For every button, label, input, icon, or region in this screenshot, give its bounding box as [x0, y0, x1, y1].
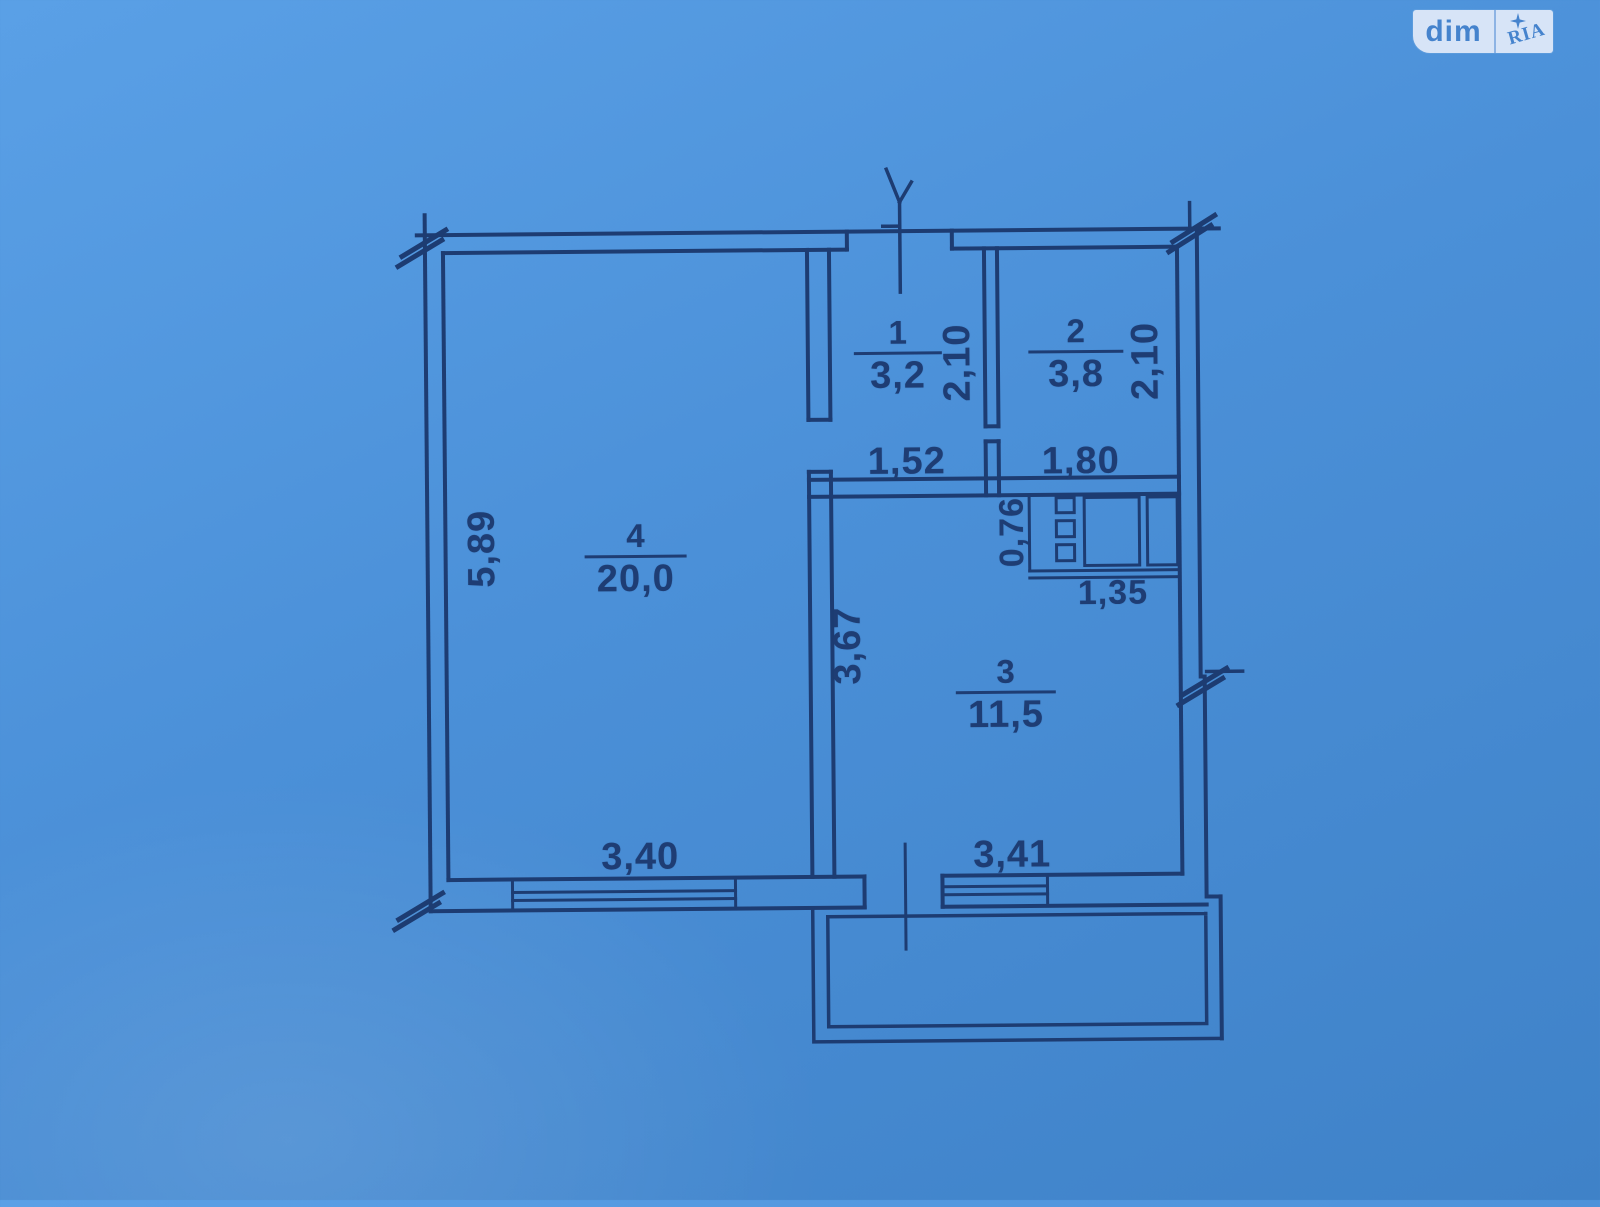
room-3-area: 11,5	[968, 695, 1044, 736]
room-3-label: 3 11,5	[955, 654, 1056, 736]
dim-room4-width: 3,40	[601, 836, 679, 880]
room-2-number: 2	[1066, 314, 1085, 347]
balcony	[813, 904, 1222, 1042]
room-4-number: 4	[626, 519, 645, 552]
room-2-label: 2 3,8	[1028, 314, 1124, 396]
dim-room3-width: 3,41	[973, 833, 1051, 877]
balcony-door	[905, 844, 906, 949]
dim-room2-width: 1,80	[1042, 440, 1120, 484]
room-1-label: 1 3,2	[854, 315, 943, 397]
vent-shaft	[1029, 494, 1180, 578]
dim-room1-width: 1,52	[868, 440, 946, 484]
dim-room2-height: 2,10	[1124, 322, 1168, 400]
room-4-label: 4 20,0	[584, 519, 687, 601]
floor-plan-photo: 1 3,2 2 3,8 3 11,5 4 20,0 1,52 1,80 1,35…	[0, 0, 1600, 1207]
room-4-area: 20,0	[597, 560, 675, 601]
dim-room3-height: 3,67	[827, 606, 871, 684]
room-2-area: 3,8	[1048, 355, 1104, 395]
room-1-number: 1	[888, 316, 907, 349]
dimria-logo-dim-text: dim	[1413, 10, 1496, 53]
dimria-logo: dim RIA	[1413, 10, 1553, 53]
room-3-number: 3	[996, 655, 1015, 688]
dim-shaft-width: 1,35	[1078, 573, 1149, 613]
dimria-logo-ria-block: RIA	[1496, 10, 1553, 53]
dim-room4-height: 5,89	[461, 510, 505, 588]
floor-plan-drawing	[0, 0, 1600, 1207]
dim-shaft-height: 0,76	[993, 497, 1033, 568]
dim-room1-height: 2,10	[936, 323, 980, 401]
room-1-area: 3,2	[870, 356, 926, 396]
